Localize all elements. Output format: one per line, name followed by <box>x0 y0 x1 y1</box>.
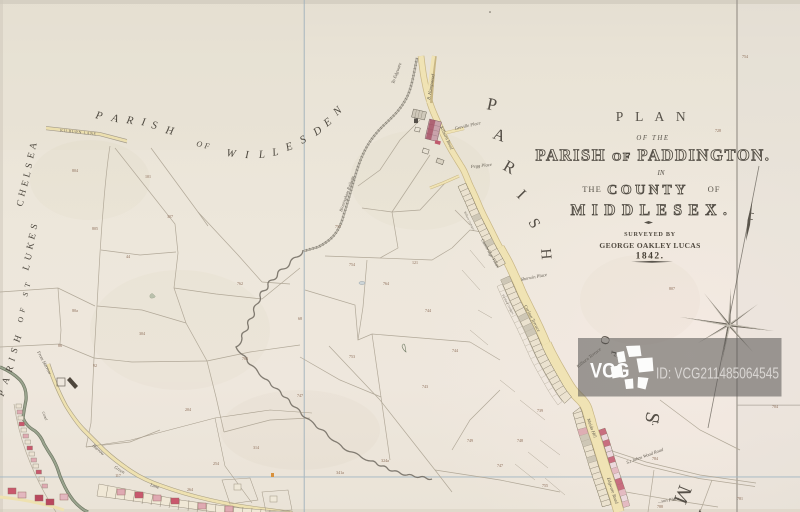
svg-text:804: 804 <box>72 168 78 173</box>
svg-text:754: 754 <box>742 54 748 59</box>
svg-text:44: 44 <box>126 254 130 259</box>
svg-text:86: 86 <box>58 343 62 348</box>
svg-text:755: 755 <box>542 483 548 488</box>
svg-text:L: L <box>257 149 265 161</box>
svg-text:COUNTY: COUNTY <box>607 183 689 198</box>
svg-text:753: 753 <box>349 354 355 359</box>
svg-text:OF THE: OF THE <box>636 135 669 142</box>
svg-text:117: 117 <box>115 473 121 478</box>
svg-text:764: 764 <box>383 281 389 286</box>
svg-text:762: 762 <box>237 281 243 286</box>
svg-text:754: 754 <box>349 262 355 267</box>
svg-text:807: 807 <box>669 286 675 291</box>
svg-text:121: 121 <box>412 260 418 265</box>
svg-text:747: 747 <box>497 463 503 468</box>
svg-text:80a: 80a <box>72 308 78 313</box>
svg-text:757: 757 <box>335 224 341 229</box>
svg-text:748: 748 <box>517 438 523 443</box>
svg-text:1842.: 1842. <box>636 252 665 262</box>
svg-text:92: 92 <box>93 363 97 368</box>
svg-text:304: 304 <box>139 331 145 336</box>
svg-text:307: 307 <box>167 214 173 219</box>
svg-text:68: 68 <box>298 316 302 321</box>
svg-text:739: 739 <box>537 408 543 413</box>
svg-text:728: 728 <box>715 128 721 133</box>
svg-text:204: 204 <box>185 407 191 412</box>
svg-text:IN: IN <box>657 169 665 177</box>
svg-text:GEORGE OAKLEY LUCAS: GEORGE OAKLEY LUCAS <box>599 241 700 250</box>
svg-text:781: 781 <box>737 496 743 501</box>
svg-text:744: 744 <box>452 348 458 353</box>
svg-text:OF: OF <box>708 184 721 194</box>
svg-text:704: 704 <box>772 404 778 409</box>
svg-text:743: 743 <box>422 384 428 389</box>
svg-text:324a: 324a <box>381 458 389 463</box>
svg-text:314: 314 <box>253 445 259 450</box>
svg-text:ID: VCG211485064545: ID: VCG211485064545 <box>656 366 779 383</box>
svg-text:744: 744 <box>425 308 431 313</box>
svg-text:805: 805 <box>92 226 98 231</box>
svg-text:VCG: VCG <box>590 359 630 383</box>
svg-text:264: 264 <box>187 487 193 492</box>
svg-text:THE: THE <box>582 184 602 194</box>
svg-text:101: 101 <box>145 174 151 179</box>
svg-text:341a: 341a <box>336 470 344 475</box>
svg-text:747: 747 <box>297 393 303 398</box>
svg-text:763: 763 <box>242 356 248 361</box>
svg-text:254: 254 <box>213 461 219 466</box>
svg-text:P L A N: P L A N <box>616 109 690 124</box>
svg-text:784: 784 <box>652 456 658 461</box>
svg-text:749: 749 <box>467 438 473 443</box>
svg-text:788: 788 <box>657 504 663 509</box>
svg-text:SURVEYED BY: SURVEYED BY <box>624 231 676 238</box>
svg-text:PARISH OF PADDINGTON.: PARISH OF PADDINGTON. <box>535 146 770 165</box>
svg-text:MIDDLESEX.: MIDDLESEX. <box>571 202 734 219</box>
svg-text:H: H <box>537 248 554 260</box>
